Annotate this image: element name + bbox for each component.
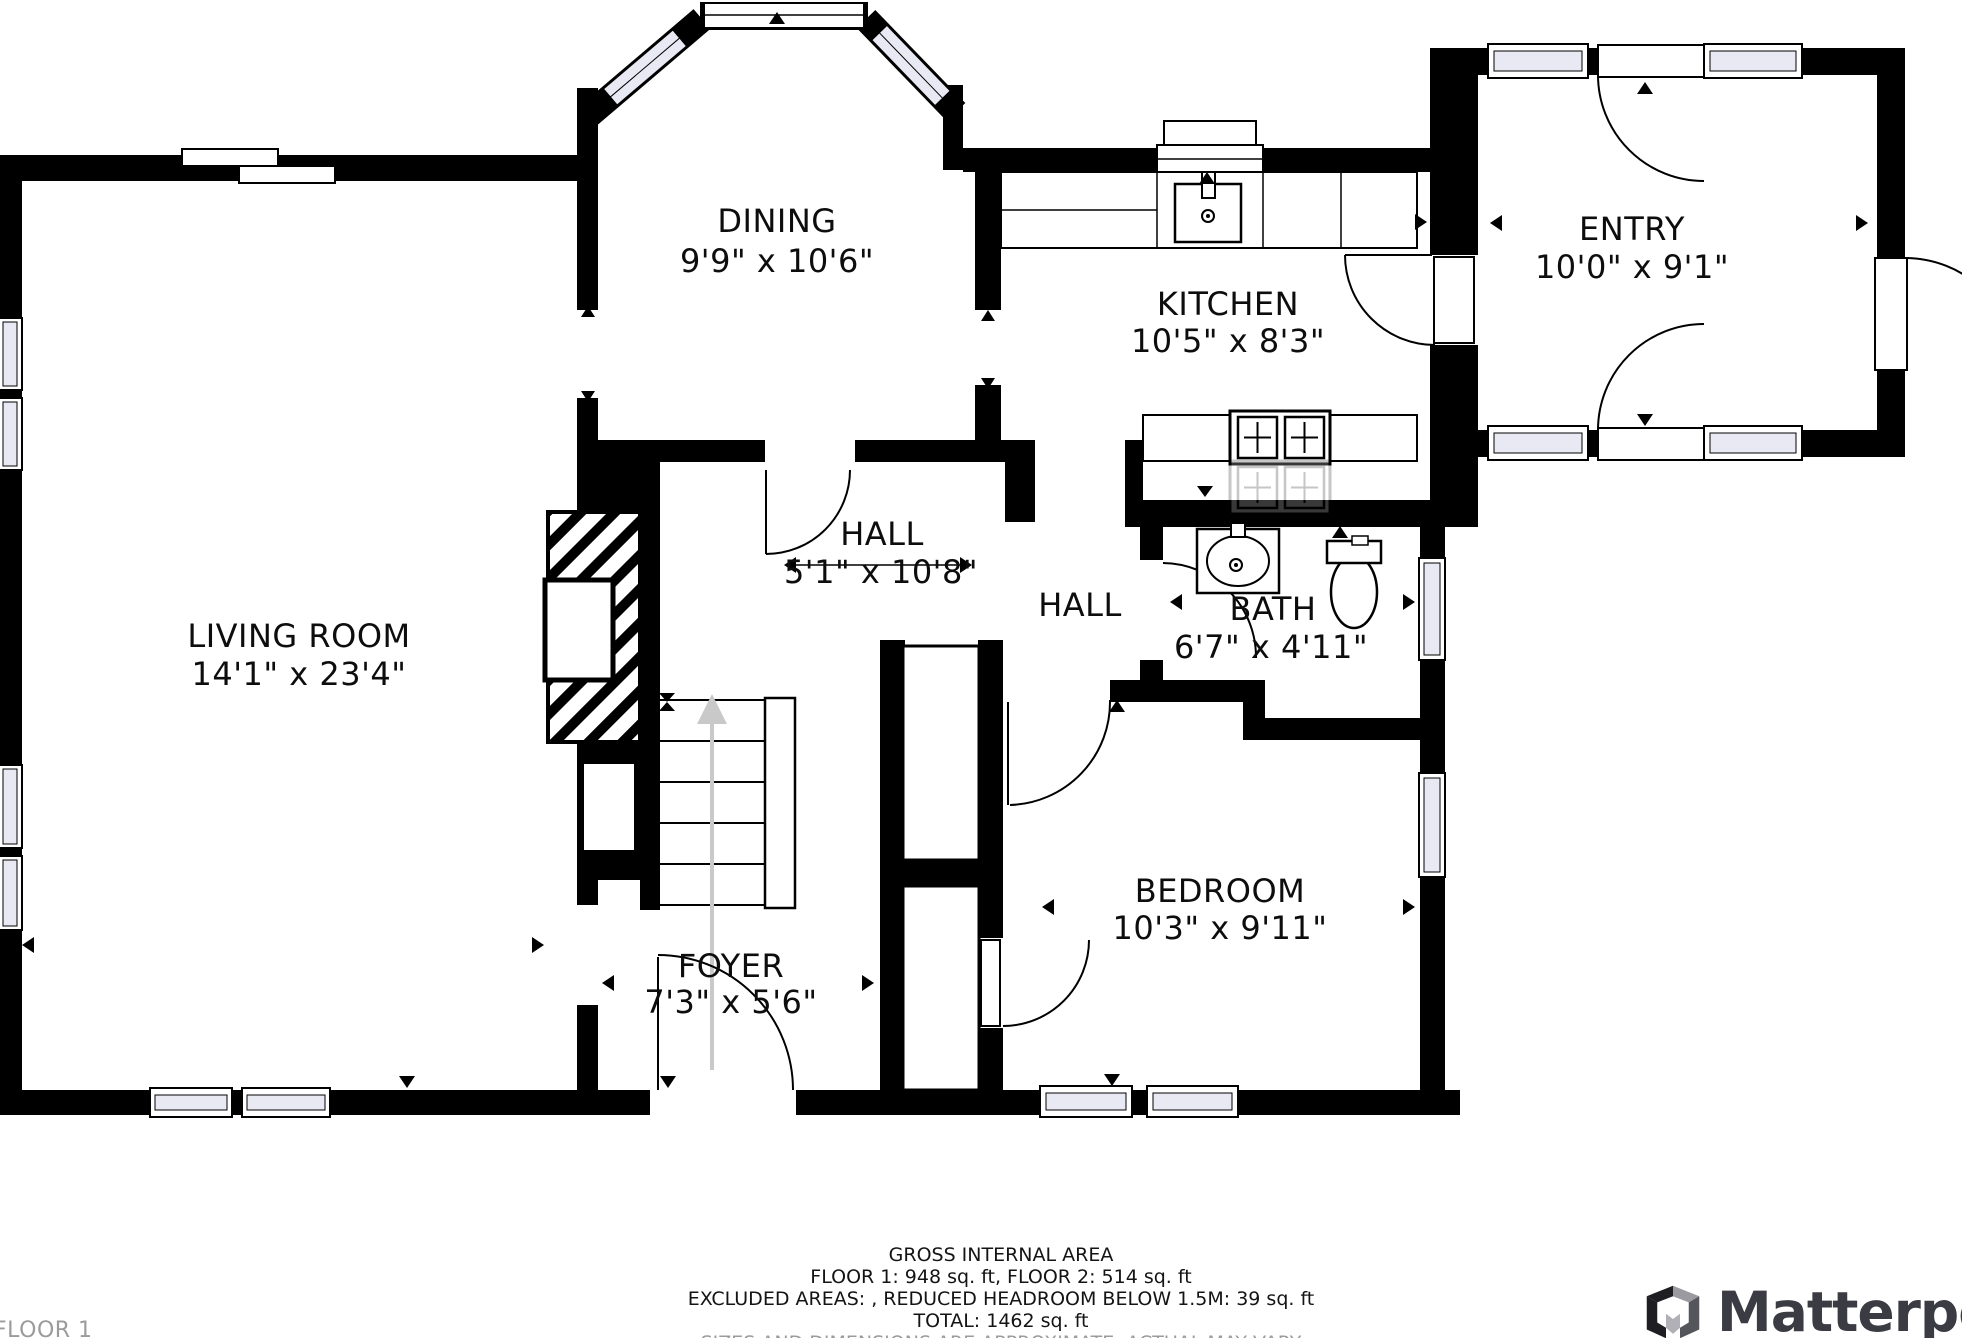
room-dims-hall-main: 5'1" x 10'8" [784,553,978,591]
room-label-hall-small: HALL [1038,586,1122,624]
stair-up-arrow-icon [697,694,727,724]
room-dims-dining: 9'9" x 10'6" [680,242,874,280]
stove [1230,411,1330,464]
bath-sink-basin [1207,536,1269,586]
floorplan-stage: DINING 9'9" x 10'6" KITCHEN 10'5" x 8'3"… [0,0,1962,1338]
matterport-logo: Matterport [1645,1280,1962,1338]
floor-plan-svg: DINING 9'9" x 10'6" KITCHEN 10'5" x 8'3"… [0,0,1962,1338]
floor-label: FLOOR 1 [0,1318,93,1338]
fireplace-nook [584,764,634,850]
room-label-kitchen: KITCHEN [1157,285,1299,323]
room-dims-bath: 6'7" x 4'11" [1174,628,1368,666]
room-dims-foyer: 7'3" x 5'6" [644,983,817,1021]
toilet-bowl [1331,556,1377,628]
room-label-living-room: LIVING ROOM [187,617,410,655]
room-dims-entry: 10'0" x 9'1" [1535,248,1729,286]
room-label-dining: DINING [717,202,836,240]
matterport-logo-icon [1645,1284,1701,1338]
firebox [545,580,613,680]
room-label-hall-main: HALL [840,515,924,553]
gross-internal-area-title: GROSS INTERNAL AREA [20,1244,1962,1266]
room-dims-kitchen: 10'5" x 8'3" [1131,322,1325,360]
fireplace [545,512,640,850]
stair-rail [765,698,795,908]
room-label-entry: ENTRY [1579,210,1685,248]
room-dims-bedroom: 10'3" x 9'11" [1113,909,1328,947]
room-label-bath: BATH [1230,590,1317,628]
room-dims-living-room: 14'1" x 23'4" [192,655,407,693]
room-label-bedroom: BEDROOM [1135,872,1306,910]
room-label-foyer: FOYER [678,947,784,985]
matterport-logo-text: Matterport [1717,1280,1962,1338]
